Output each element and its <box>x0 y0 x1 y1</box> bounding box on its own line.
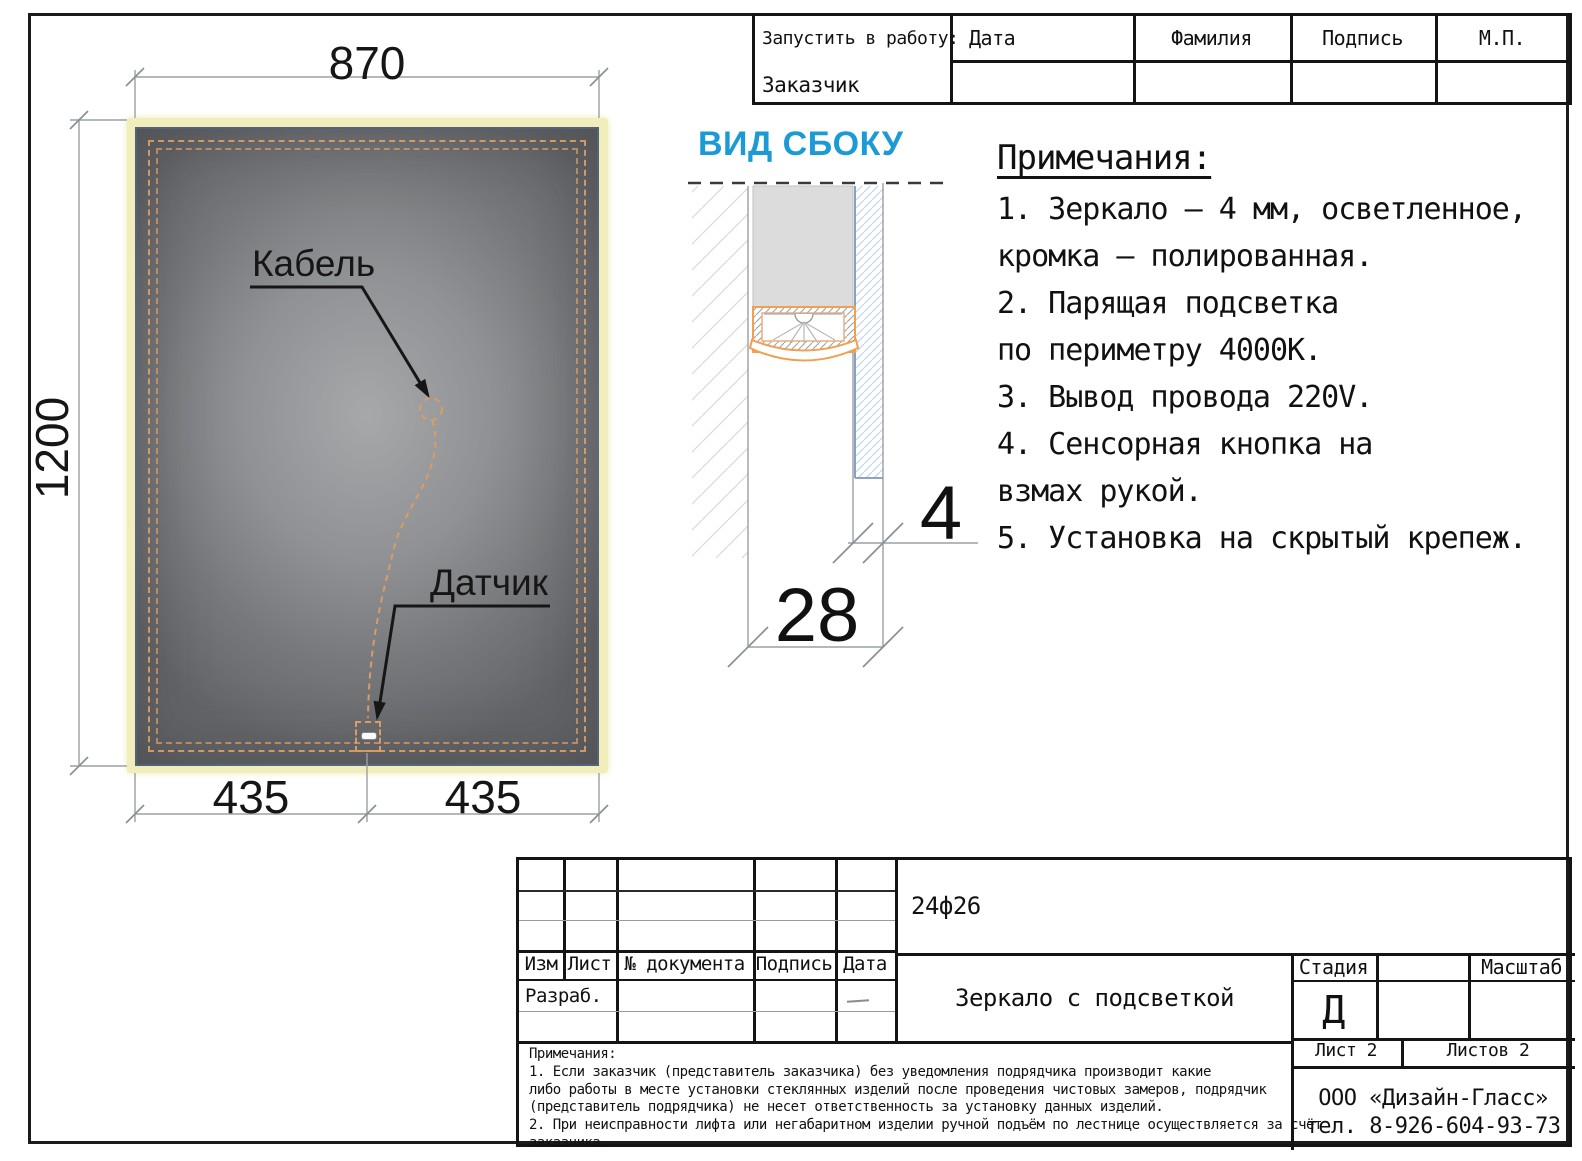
company-name: ООО «Дизайн-Гласс» <box>1294 1086 1572 1111</box>
footnote-line: 1. Если заказчик (представитель заказчик… <box>529 1064 1281 1082</box>
stamp-column-date: Дата <box>953 16 1133 60</box>
tb-line <box>519 979 895 981</box>
doc-code: 24ф26 <box>911 860 981 953</box>
footnote-line: (представитель подрядчика) не несет отве… <box>529 1099 1281 1117</box>
tb-line <box>519 1011 895 1012</box>
note-line: взмах рукой. <box>997 468 1582 515</box>
scale-label: Масштаб <box>1468 955 1575 979</box>
tb-line <box>1376 953 1379 1038</box>
approval-stamp-left-cell: Запустить в работу: Заказчик <box>755 16 953 102</box>
sheets-total: Листов 2 <box>1401 1040 1575 1061</box>
tb-line <box>519 890 895 892</box>
note-line: 5. Установка на скрытый крепеж. <box>997 515 1582 562</box>
tb-line <box>519 1041 1291 1044</box>
approval-stamp-table: Запустить в работу: Заказчик Дата Фамили… <box>752 13 1572 105</box>
notes-heading: Примечания: <box>997 138 1211 178</box>
dim-435-left-label: 435 <box>171 770 331 824</box>
stage-value: Д <box>1291 982 1376 1038</box>
stamp-column-signature: Подпись <box>1290 16 1435 60</box>
product-name: Зеркало с подсветкой <box>898 956 1291 1041</box>
led-strip-inner-outline <box>156 148 578 744</box>
touch-sensor-window <box>361 732 377 740</box>
note-line: 2. Парящая подсветка <box>997 280 1582 327</box>
sheet-number: Лист 2 <box>1291 1040 1401 1061</box>
note-line: кромка – полированная. <box>997 233 1582 280</box>
tb-header-list: Лист <box>563 953 616 975</box>
footnote-line: либо работы в месте установки стеклянных… <box>529 1082 1281 1100</box>
cable-label: Кабель <box>252 243 375 285</box>
tb-line <box>1291 1066 1575 1069</box>
footnote-line: 2. При неисправности лифта или негабарит… <box>529 1117 1281 1135</box>
stamp-column-mp: М.П. <box>1435 16 1569 60</box>
dim-28-label: 28 <box>762 572 872 659</box>
tb-header-signature: Подпись <box>753 953 835 975</box>
drawing-sheet: Запустить в работу: Заказчик Дата Фамили… <box>0 0 1582 1161</box>
note-line: 3. Вывод провода 220V. <box>997 374 1582 421</box>
tb-developer-label: Разраб. <box>525 985 602 1007</box>
sensor-label: Датчик <box>430 562 548 604</box>
footnote-line: Примечания: <box>529 1046 1281 1064</box>
stamp-header-divider <box>953 60 1569 63</box>
stage-label: Стадия <box>1291 955 1376 979</box>
tb-header-date: Дата <box>835 953 895 975</box>
footnote-line: заказчика. <box>529 1135 1281 1153</box>
stamp-column-surname: Фамилия <box>1133 16 1290 60</box>
side-view-title: ВИД СБОКУ <box>698 125 910 164</box>
tb-header-docnum: № документа <box>616 953 753 975</box>
note-line: по периметру 4000К. <box>997 327 1582 374</box>
signature-mark <box>847 999 869 1003</box>
title-block: Изм Лист № документа Подпись Дата Разраб… <box>516 857 1572 1147</box>
dim-870-label: 870 <box>287 36 447 90</box>
dim-435-right-label: 435 <box>403 770 563 824</box>
notes-list: 1. Зеркало – 4 мм, осветленное, кромка –… <box>997 186 1582 562</box>
company-phone: тел. 8-926-604-93-73 <box>1294 1114 1572 1139</box>
tb-line <box>519 920 895 921</box>
note-line: 4. Сенсорная кнопка на <box>997 421 1582 468</box>
dim-1200-label: 1200 <box>25 338 79 558</box>
customer-label: Заказчик <box>762 73 859 97</box>
dim-4-label: 4 <box>896 470 986 557</box>
tb-header-izm: Изм <box>519 953 563 975</box>
launch-label: Запустить в работу: <box>762 28 958 49</box>
note-line: 1. Зеркало – 4 мм, осветленное, <box>997 186 1582 233</box>
footnotes-block: Примечания: 1. Если заказчик (представит… <box>529 1046 1281 1153</box>
